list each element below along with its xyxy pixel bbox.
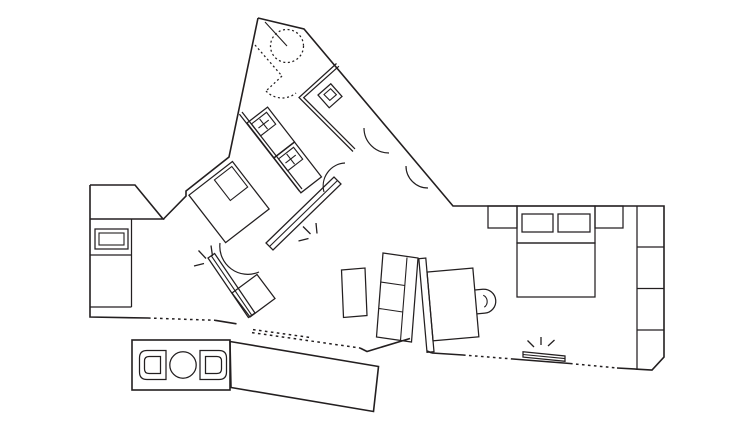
- outdoor-chair-right: [200, 351, 227, 380]
- floor-plan-drawing: [0, 0, 754, 435]
- round-outdoor-table: [170, 352, 196, 378]
- outdoor-chair-left: [140, 351, 167, 380]
- floor-plan-canvas: [0, 0, 754, 435]
